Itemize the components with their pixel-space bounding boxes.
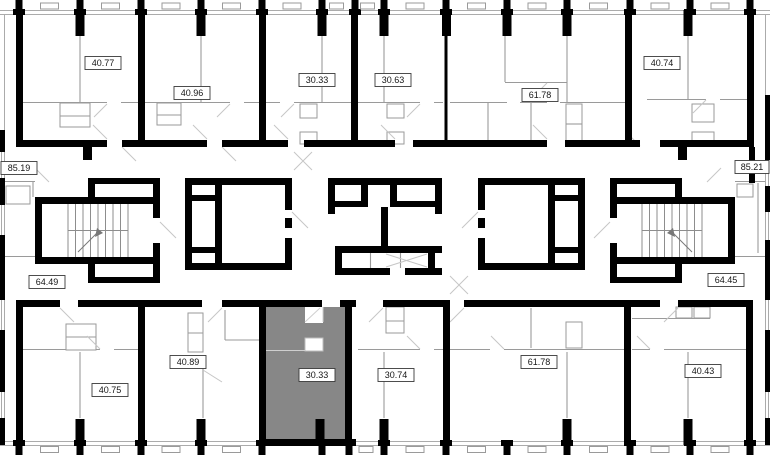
unit-label-64-49[interactable]: 64.49 [29, 276, 65, 289]
selected-unit-door-nook [305, 307, 323, 323]
unit-label-bottom-61-78[interactable]: 61.78 [521, 356, 557, 369]
facade-left [0, 14, 5, 445]
unit-label-64-45[interactable]: 64.45 [708, 274, 744, 287]
elevator-core-right [478, 178, 585, 270]
svg-text:64.49: 64.49 [36, 277, 59, 287]
floor-plan-canvas: 40.77 40.96 30.33 30.63 61.78 40.74 85.1… [0, 0, 770, 455]
svg-text:40.77: 40.77 [92, 58, 115, 68]
unit-label-bottom-40-89[interactable]: 40.89 [170, 356, 206, 369]
svg-text:61.78: 61.78 [528, 357, 551, 367]
unit-label-top-30-33[interactable]: 30.33 [299, 74, 335, 87]
svg-text:85.21: 85.21 [741, 162, 764, 172]
svg-text:30.74: 30.74 [385, 370, 408, 380]
unit-label-bottom-30-33-selected[interactable]: 30.33 [299, 369, 335, 382]
svg-text:40.43: 40.43 [692, 366, 715, 376]
unit-label-85-21[interactable]: 85.21 [735, 161, 769, 174]
floor-plan: 40.77 40.96 30.33 30.63 61.78 40.74 85.1… [0, 0, 770, 455]
unit-label-bottom-30-74[interactable]: 30.74 [378, 369, 414, 382]
door-swings [35, 83, 721, 382]
unit-label-top-30-63[interactable]: 30.63 [375, 74, 411, 87]
svg-text:85.19: 85.19 [8, 163, 31, 173]
elevator-core-left [185, 178, 292, 270]
unit-label-bottom-40-75[interactable]: 40.75 [92, 384, 128, 397]
svg-text:40.74: 40.74 [651, 58, 674, 68]
stairwell-left [35, 178, 160, 283]
svg-text:61.78: 61.78 [529, 90, 552, 100]
unit-label-top-40-77[interactable]: 40.77 [85, 57, 121, 70]
facade-right [765, 14, 770, 445]
unit-label-top-40-96[interactable]: 40.96 [174, 87, 210, 100]
stair-arrow-right [672, 232, 692, 252]
unit-label-top-61-78[interactable]: 61.78 [522, 89, 558, 102]
svg-text:40.75: 40.75 [99, 385, 122, 395]
elevator-core-center [328, 178, 442, 275]
shaft-cross-mark [386, 254, 427, 267]
unit-label-85-19[interactable]: 85.19 [1, 162, 37, 175]
svg-text:40.96: 40.96 [181, 88, 204, 98]
svg-text:30.63: 30.63 [382, 75, 405, 85]
unit-label-top-40-74[interactable]: 40.74 [644, 57, 680, 70]
selected-unit-exterior-wall [262, 439, 356, 446]
unit-label-bottom-40-43[interactable]: 40.43 [685, 365, 721, 378]
svg-text:40.89: 40.89 [177, 357, 200, 367]
stairwell-right [610, 178, 735, 283]
stair-arrow-left [78, 232, 98, 252]
selected-unit-bath-fixture [305, 338, 323, 351]
svg-text:30.33: 30.33 [306, 75, 329, 85]
svg-text:64.45: 64.45 [715, 275, 738, 285]
svg-text:30.33: 30.33 [306, 370, 329, 380]
